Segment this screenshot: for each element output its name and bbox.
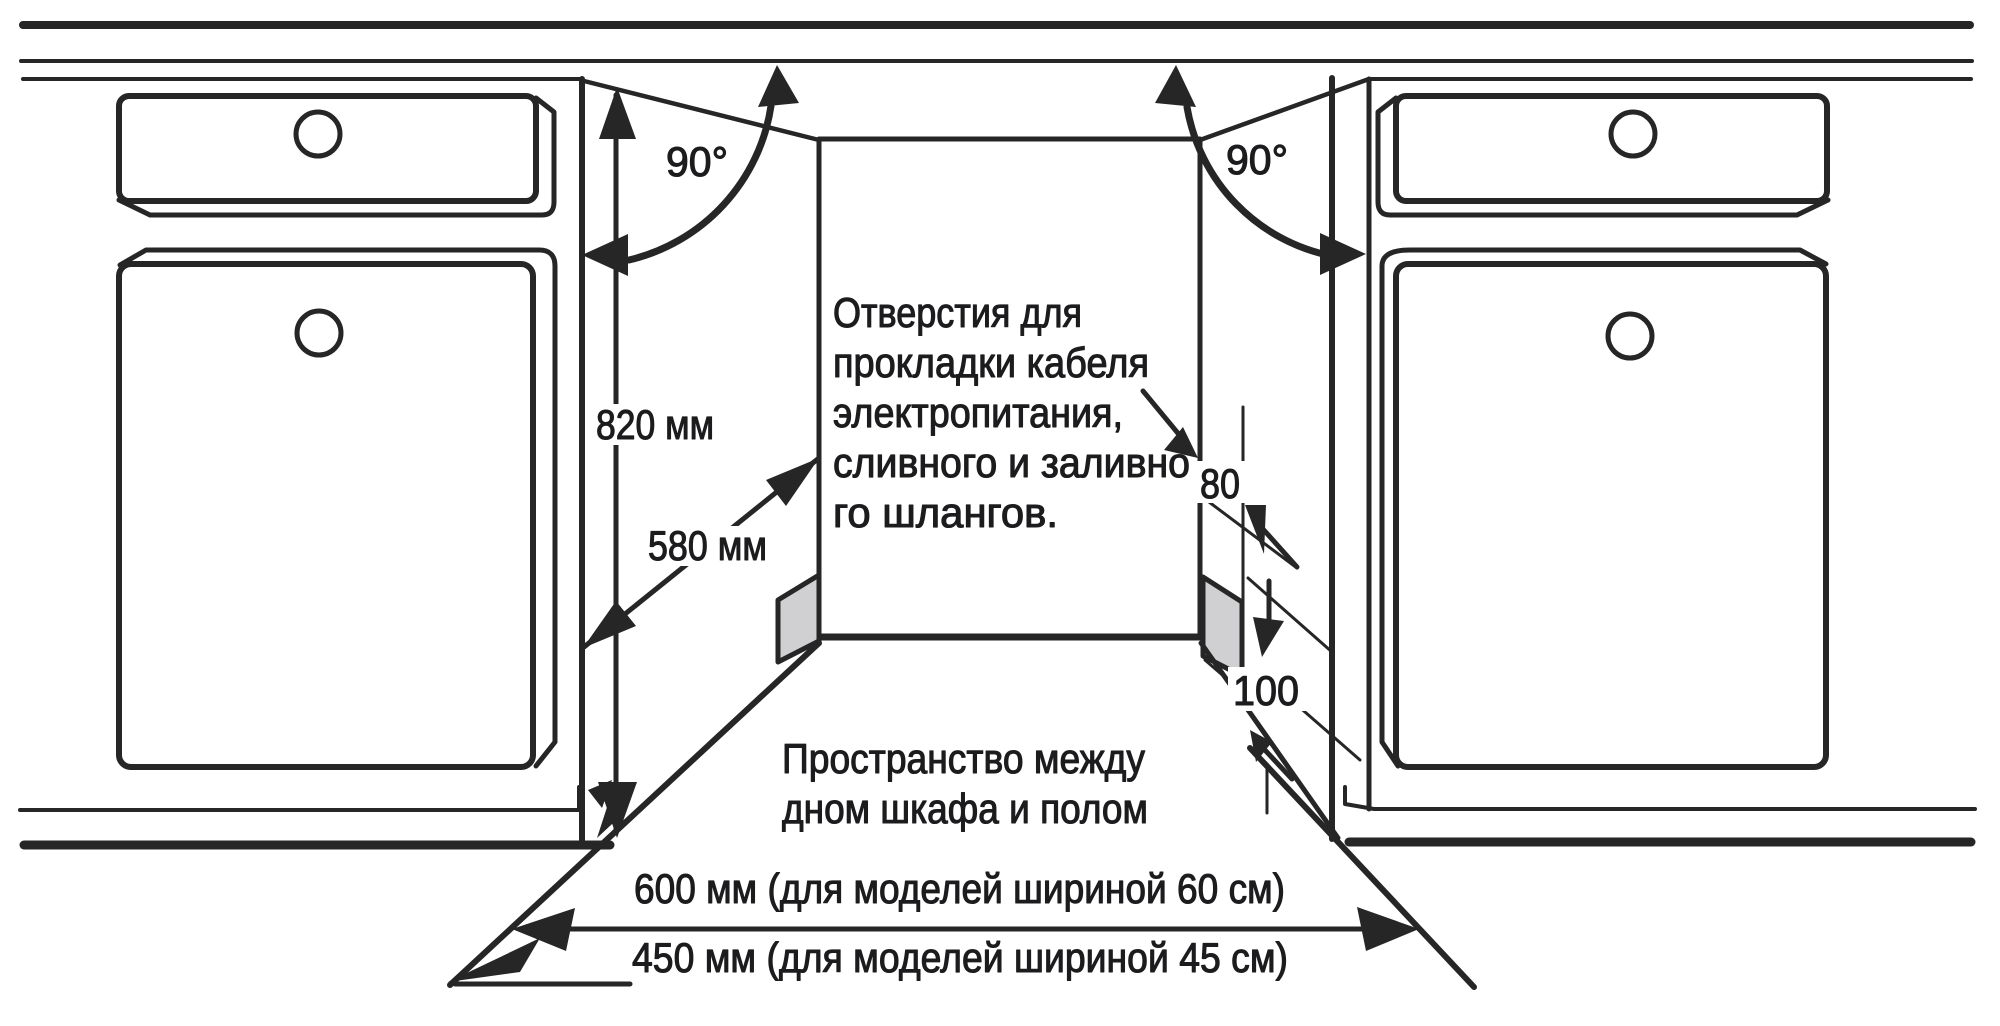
svg-text:820 мм: 820 мм xyxy=(596,401,714,448)
svg-text:Пространство между: Пространство между xyxy=(782,735,1145,782)
svg-text:90°: 90° xyxy=(666,138,728,185)
svg-text:80: 80 xyxy=(1200,460,1240,507)
svg-text:100: 100 xyxy=(1233,667,1299,714)
svg-text:го шлангов.: го шлангов. xyxy=(833,489,1058,536)
svg-text:450 мм (для моделей шириной 45: 450 мм (для моделей шириной 45 см) xyxy=(632,934,1288,981)
svg-text:90°: 90° xyxy=(1226,136,1288,183)
svg-text:электропитания,: электропитания, xyxy=(833,389,1123,436)
svg-text:600 мм (для моделей шириной 60: 600 мм (для моделей шириной 60 см) xyxy=(634,865,1285,912)
svg-text:580 мм: 580 мм xyxy=(648,522,767,569)
svg-text:сливного и заливно: сливного и заливно xyxy=(833,439,1190,486)
svg-text:Отверстия для: Отверстия для xyxy=(833,289,1082,336)
svg-text:дном шкафа и полом: дном шкафа и полом xyxy=(782,785,1148,832)
svg-text:прокладки кабеля: прокладки кабеля xyxy=(833,339,1149,386)
